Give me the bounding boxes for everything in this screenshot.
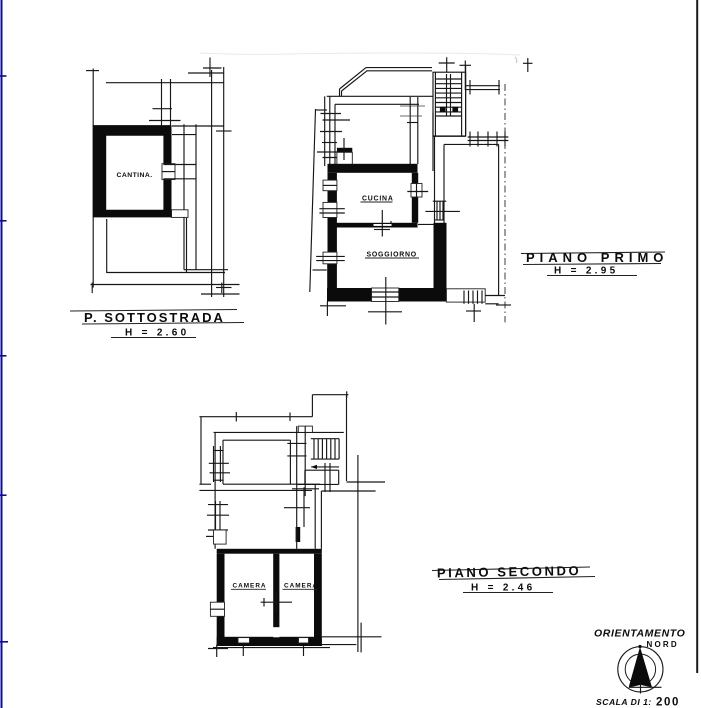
svg-text:H = 2.95: H = 2.95 — [554, 266, 618, 277]
svg-text:CANTINA.: CANTINA. — [117, 172, 153, 179]
svg-text:H = 2.60: H = 2.60 — [125, 328, 189, 339]
svg-text:SOGGIORNO: SOGGIORNO — [367, 252, 417, 259]
svg-text:NORD: NORD — [647, 640, 679, 649]
svg-text:SCALA DI 1:: SCALA DI 1: — [596, 697, 652, 707]
svg-text:CUCINA: CUCINA — [362, 196, 394, 203]
svg-text:200: 200 — [656, 697, 680, 708]
svg-text:CAMERA: CAMERA — [284, 583, 318, 590]
svg-text:ORIENTAMENTO: ORIENTAMENTO — [594, 628, 685, 640]
svg-text:PIANO PRIMO: PIANO PRIMO — [526, 250, 668, 265]
svg-text:H = 2.46: H = 2.46 — [471, 583, 535, 594]
svg-text:CAMERA: CAMERA — [233, 583, 267, 590]
